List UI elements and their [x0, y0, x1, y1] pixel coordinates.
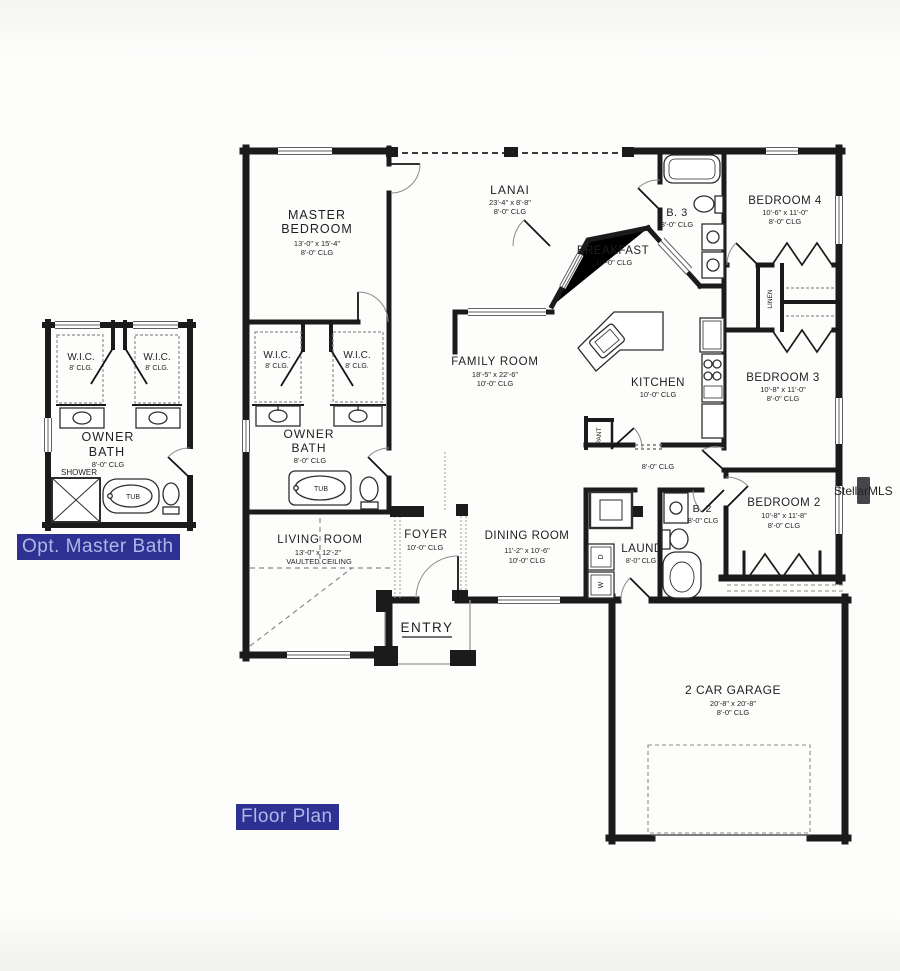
detail-label-shower: SHOWER: [61, 468, 97, 477]
label-tub-main: TUB: [314, 486, 328, 493]
laundry-cabinet: [590, 492, 632, 528]
detail-label-owner-l1: OWNER: [82, 430, 135, 444]
label-master-l1: MASTER: [288, 208, 346, 222]
floor-plan-page: MASTER BEDROOM 13'-0" x 15'-4" 8'-0" CLG…: [0, 0, 900, 971]
label-bedroom2-dims: 10'-8" x 11'-8": [761, 511, 807, 520]
label-b2: B. 2: [693, 503, 712, 515]
label-bedroom3: BEDROOM 3: [746, 372, 820, 384]
label-lanai-clg: 8'-0" CLG: [494, 207, 527, 216]
label-lanai: LANAI: [490, 183, 530, 197]
label-garage: 2 CAR GARAGE: [685, 683, 781, 697]
label-dining: DINING ROOM: [485, 530, 570, 542]
label-lanai-dims: 23'-4" x 8'-8": [489, 198, 531, 207]
label-wic1-clg: 8' CLG.: [265, 363, 289, 370]
toilet-b3: [694, 196, 723, 213]
label-family-dims: 18'-5" x 22'-6": [472, 370, 518, 379]
label-family-clg: 10'-0" CLG: [477, 379, 514, 388]
label-living: LIVING ROOM: [277, 534, 362, 546]
label-breakfast: BREAKFAST: [577, 245, 649, 257]
label-master-dims: 13'-0" x 15'-4": [294, 239, 340, 248]
detail-label-wic1-clg: 8' CLG.: [69, 365, 93, 372]
kitchen-island: [578, 312, 663, 371]
label-b3: B. 3: [666, 207, 688, 219]
label-bedroom4-dims: 10'-6" x 11'-0": [762, 208, 808, 217]
label-bedroom3-dims: 10'-8" x 11'-0": [760, 385, 806, 394]
floor-plan-drawing: MASTER BEDROOM 13'-0" x 15'-4" 8'-0" CLG…: [0, 0, 900, 971]
bathtub-b3: [664, 155, 720, 183]
detail-label-wic2-clg: 8' CLG.: [145, 365, 169, 372]
label-dining-dims: 11'-2" x 10'-6": [504, 546, 550, 555]
label-kitchen: KITCHEN: [631, 377, 685, 389]
label-living-dims: 13'-0" x 12'-2": [295, 548, 341, 557]
vanity-sinks: [256, 406, 382, 426]
label-washer: W: [598, 581, 605, 588]
label-foyer-clg: 10'-0" CLG: [407, 543, 444, 552]
kitchen-counter: [702, 404, 724, 438]
watermark-logo-bar: [857, 477, 870, 504]
label-bedroom3-clg: 8'-0" CLG: [767, 394, 800, 403]
label-breakfast-clg: 10'-0" CLG: [596, 258, 633, 267]
vanity-b2: [664, 493, 688, 523]
label-laundry-clg: 8'-0" CLG: [626, 558, 656, 565]
vanity-b3: [702, 224, 724, 278]
detail-vanities: [60, 408, 180, 428]
label-wic2-clg: 8' CLG.: [345, 363, 369, 370]
label-wic1: W.I.C.: [263, 350, 290, 361]
detail-label-owner-l2: BATH: [89, 445, 125, 459]
detail-shower: [52, 478, 100, 522]
label-kitchen-clg: 10'-0" CLG: [640, 390, 677, 399]
opt-master-bath-badge: Opt. Master Bath: [17, 534, 180, 560]
label-garage-clg: 8'-0" CLG: [717, 708, 750, 717]
label-wic2: W.I.C.: [343, 350, 370, 361]
label-master-l2: BEDROOM: [281, 222, 353, 236]
label-b2-clg: 8'-0" CLG: [688, 518, 718, 525]
label-owner-bath-l1: OWNER: [284, 427, 335, 441]
refrigerator: [700, 318, 724, 352]
label-laundry: LAUND: [621, 543, 662, 555]
label-b3-clg: 8'-0" CLG: [661, 220, 694, 229]
detail-label-wic1: W.I.C.: [67, 352, 94, 363]
detail-label-tub: TUB: [126, 494, 140, 501]
label-linen: LINEN: [767, 289, 774, 308]
bathtub-b2: [663, 552, 701, 598]
label-owner-bath-clg: 8'-0" CLG: [294, 456, 327, 465]
toilet-main: [360, 477, 378, 509]
floor-plan-badge: Floor Plan: [236, 804, 339, 830]
detail-toilet: [163, 483, 179, 514]
label-foyer: FOYER: [404, 529, 448, 541]
label-owner-bath-l2: BATH: [291, 441, 326, 455]
label-garage-dims: 20'-8" x 20'-8": [710, 699, 756, 708]
label-pantry: PANT: [596, 428, 603, 445]
label-living-clg: VAULTED CEILING: [286, 557, 352, 566]
label-master-clg: 8'-0" CLG: [301, 248, 334, 257]
range: [702, 354, 724, 402]
detail-label-wic2: W.I.C.: [143, 352, 170, 363]
label-bedroom4: BEDROOM 4: [748, 195, 822, 207]
label-bedroom2: BEDROOM 2: [747, 497, 821, 509]
toilet-b2: [662, 529, 688, 549]
label-family: FAMILY ROOM: [451, 356, 539, 368]
label-dining-clg: 10'-0" CLG: [509, 556, 546, 565]
label-bedroom4-clg: 8'-0" CLG: [769, 217, 802, 226]
label-dryer: D: [598, 554, 605, 559]
label-bedroom2-clg: 8'-0" CLG: [768, 521, 801, 530]
label-hall-clg: 8'-0" CLG: [642, 462, 675, 471]
label-entry: ENTRY: [400, 620, 453, 635]
